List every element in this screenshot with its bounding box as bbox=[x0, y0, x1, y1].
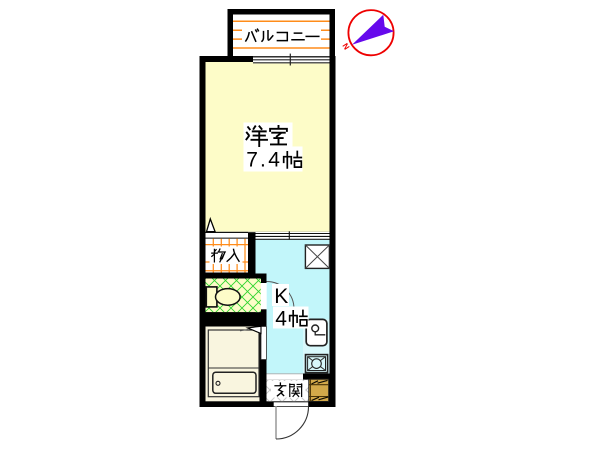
svg-text:7: 7 bbox=[246, 149, 258, 172]
svg-text:.: . bbox=[260, 149, 266, 172]
svg-text:K: K bbox=[274, 285, 288, 308]
svg-text:4: 4 bbox=[268, 149, 280, 172]
svg-text:4: 4 bbox=[275, 307, 287, 330]
